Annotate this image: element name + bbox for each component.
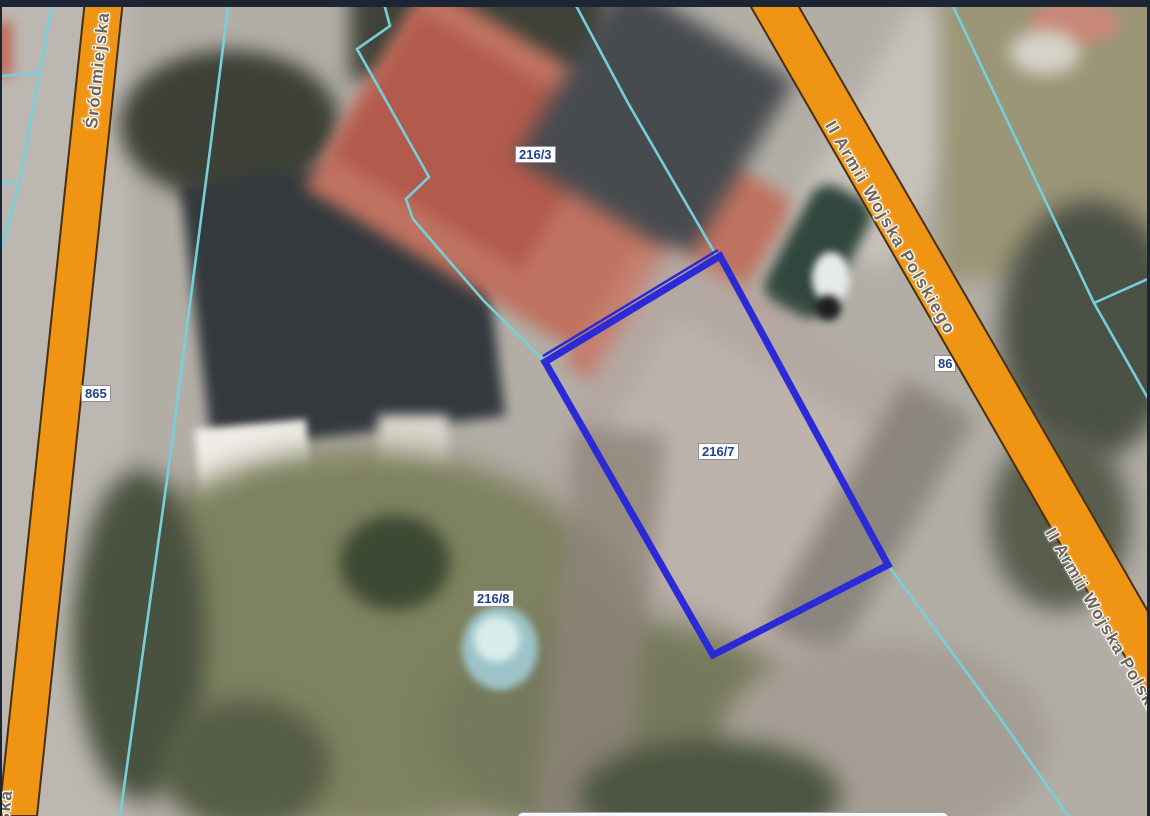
street-name-srodmiejska-2: Śródmiejska [0,788,17,816]
map-viewport[interactable]: 86 216/3 216/7 216/8 865 Śródmiejska Śró… [0,0,1150,816]
boundary-west [120,0,229,816]
parcel-number-label: 216/3 [515,146,556,163]
boundary-left-edge [0,0,53,255]
bottom-toolbar[interactable] [517,812,949,816]
boundary-east-branch [1094,278,1150,303]
boundary-left-seg1 [0,73,37,76]
boundary-jagged-216-3 [357,0,545,362]
frame-left-edge [0,0,2,816]
road-band-srodmiejska [0,0,123,816]
boundary-216-3-east [573,0,716,255]
parcel-number-label-selected: 216/7 [698,443,739,460]
selected-parcel-inner-line [543,250,718,356]
parcel-number-label: 865 [81,385,111,402]
boundary-southeast [888,565,1068,816]
parcel-number-label: 216/8 [473,590,514,607]
boundary-left-seg2 [0,181,16,185]
frame-top-bar [0,0,1150,7]
vector-overlay [0,0,1150,816]
